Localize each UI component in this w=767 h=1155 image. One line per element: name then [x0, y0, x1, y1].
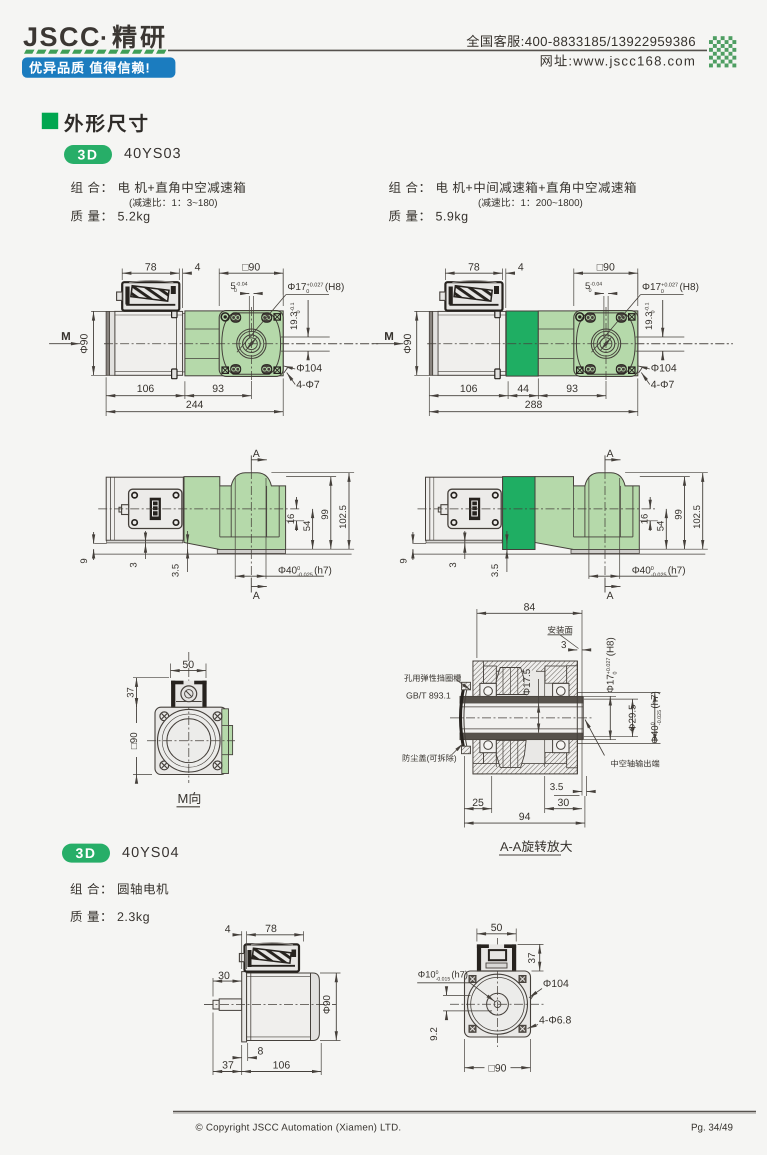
svg-text:25: 25: [472, 797, 484, 809]
svg-text:(减速比：1：3~180): (减速比：1：3~180): [129, 197, 217, 209]
svg-text:4-Φ7: 4-Φ7: [296, 379, 320, 391]
svg-text:78: 78: [265, 923, 277, 935]
svg-text:9: 9: [399, 558, 410, 563]
svg-text:3: 3: [448, 562, 459, 567]
svg-text:50: 50: [491, 922, 503, 934]
svg-text:3: 3: [561, 640, 567, 651]
svg-text:M: M: [384, 331, 394, 343]
svg-text:288: 288: [525, 399, 543, 411]
svg-text:M: M: [61, 331, 71, 343]
svg-text:JSCC: JSCC: [23, 22, 101, 52]
svg-text:Φ104: Φ104: [296, 363, 322, 375]
svg-text:3.5: 3.5: [550, 782, 564, 793]
svg-text:质 量： 5.9kg: 质 量： 5.9kg: [389, 210, 469, 224]
svg-text:组 合： 电 机+直角中空减速箱: 组 合： 电 机+直角中空减速箱: [71, 181, 247, 195]
svg-text:质 量： 5.2kg: 质 量： 5.2kg: [71, 210, 151, 224]
svg-text:40YS04: 40YS04: [122, 845, 180, 861]
svg-text:质 量： 2.3kg: 质 量： 2.3kg: [70, 910, 150, 924]
svg-text:Φ29.5: Φ29.5: [627, 704, 638, 731]
svg-text:优异品质 值得信赖!: 优异品质 值得信赖!: [29, 61, 151, 76]
svg-text:□90: □90: [488, 1062, 506, 1074]
svg-text:© Copyright JSCC Automation (X: © Copyright JSCC Automation (Xiamen) LTD…: [196, 1123, 402, 1134]
svg-text:□90: □90: [242, 261, 260, 273]
svg-text:网址:www.jscc168.com: 网址:www.jscc168.com: [540, 53, 696, 68]
svg-text:106: 106: [460, 383, 478, 395]
svg-text:78: 78: [468, 261, 480, 273]
svg-text:Φ17.5: Φ17.5: [522, 668, 533, 695]
svg-text:□90: □90: [129, 732, 140, 749]
svg-text:A: A: [607, 448, 614, 460]
svg-text:□90: □90: [597, 261, 615, 273]
svg-text:4-Φ6.8: 4-Φ6.8: [539, 1015, 571, 1027]
svg-text:37: 37: [126, 687, 137, 698]
svg-text:3D: 3D: [78, 147, 99, 163]
svg-text:54: 54: [656, 521, 667, 532]
svg-text:外形尺寸: 外形尺寸: [64, 114, 150, 136]
svg-text:54: 54: [302, 521, 313, 532]
svg-text:37: 37: [222, 1060, 234, 1072]
svg-text:93: 93: [566, 383, 578, 395]
svg-text:Φ90: Φ90: [322, 995, 333, 1015]
svg-text:78: 78: [145, 261, 157, 273]
svg-text:Pg. 34/49: Pg. 34/49: [691, 1123, 733, 1134]
svg-text:组 合： 圆轴电机: 组 合： 圆轴电机: [70, 883, 169, 897]
svg-text:37: 37: [527, 953, 538, 964]
svg-text:Φ104: Φ104: [543, 978, 569, 990]
svg-text:A: A: [253, 448, 260, 460]
svg-text:A: A: [607, 590, 614, 602]
svg-text:GB/T 893.1: GB/T 893.1: [406, 691, 451, 701]
svg-text:组 合： 电 机+中间减速箱+直角中空减速箱: 组 合： 电 机+中间减速箱+直角中空减速箱: [389, 181, 638, 195]
svg-text:99: 99: [674, 509, 685, 520]
svg-text:106: 106: [273, 1060, 291, 1072]
svg-text:·: ·: [100, 25, 108, 52]
svg-text:4: 4: [518, 261, 524, 273]
svg-text:4-Φ7: 4-Φ7: [651, 379, 675, 391]
svg-text:16: 16: [640, 514, 651, 525]
svg-text:93: 93: [212, 383, 224, 395]
svg-text:106: 106: [137, 383, 155, 395]
svg-text:8: 8: [258, 1046, 264, 1058]
svg-text:3.5: 3.5: [171, 564, 182, 577]
svg-text:44: 44: [517, 383, 529, 395]
svg-text:94: 94: [519, 811, 531, 823]
svg-text:244: 244: [186, 399, 204, 411]
svg-text:3.5: 3.5: [490, 564, 501, 577]
svg-text:Φ90: Φ90: [402, 334, 414, 354]
svg-text:40YS03: 40YS03: [124, 146, 182, 162]
svg-text:9: 9: [79, 558, 90, 563]
svg-text:99: 99: [320, 509, 331, 520]
svg-text:30: 30: [558, 797, 570, 809]
svg-text:50: 50: [182, 659, 194, 671]
svg-text:孔用弹性挡圈槽: 孔用弹性挡圈槽: [404, 674, 461, 683]
svg-text:精研: 精研: [112, 24, 168, 52]
svg-text:9.2: 9.2: [429, 1027, 440, 1041]
svg-text:M向: M向: [178, 791, 202, 806]
svg-text:3D: 3D: [76, 845, 97, 861]
svg-text:102.5: 102.5: [692, 505, 703, 529]
svg-text:102.5: 102.5: [338, 505, 349, 529]
svg-text:全国客服:400-8833185/13922959386: 全国客服:400-8833185/13922959386: [466, 34, 696, 49]
svg-text:(减速比：1：200~1800): (减速比：1：200~1800): [478, 197, 583, 209]
svg-text:A-A旋转放大: A-A旋转放大: [500, 839, 573, 854]
svg-text:Φ90: Φ90: [79, 334, 91, 354]
svg-text:A: A: [253, 590, 260, 602]
svg-text:中空轴输出端: 中空轴输出端: [611, 759, 660, 768]
svg-text:30: 30: [218, 970, 230, 982]
svg-text:3: 3: [129, 562, 140, 567]
svg-text:16: 16: [286, 514, 297, 525]
svg-text:84: 84: [524, 601, 536, 613]
svg-text:防尘盖(可拆除): 防尘盖(可拆除): [402, 754, 457, 763]
svg-text:4: 4: [225, 923, 231, 935]
svg-text:4: 4: [195, 261, 201, 273]
svg-text:安装面: 安装面: [548, 625, 574, 635]
svg-text:Φ104: Φ104: [651, 363, 677, 375]
